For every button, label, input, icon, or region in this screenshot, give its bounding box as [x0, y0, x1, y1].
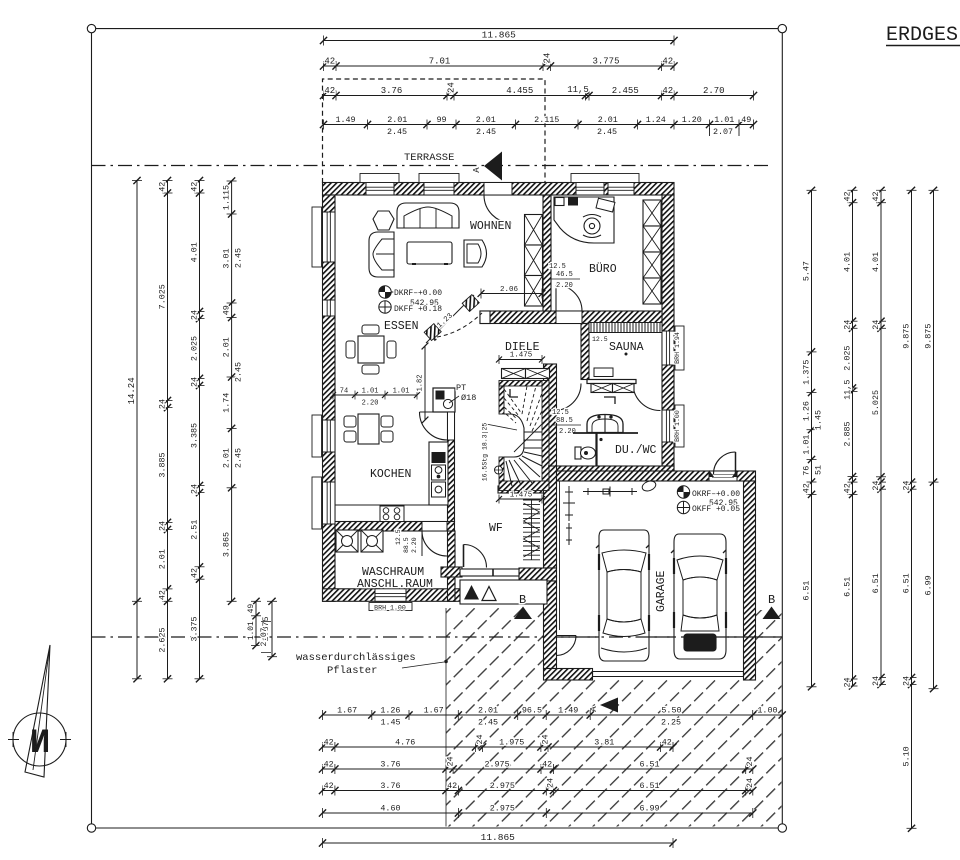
svg-text:14.24: 14.24: [127, 377, 137, 404]
svg-text:PT: PT: [456, 383, 466, 393]
svg-text:11.865: 11.865: [481, 832, 516, 843]
svg-text:4.01: 4.01: [190, 242, 200, 262]
svg-text:3.76: 3.76: [380, 760, 400, 770]
svg-text:6.51: 6.51: [639, 781, 659, 791]
svg-text:3.885: 3.885: [158, 452, 168, 477]
svg-text:2.45: 2.45: [234, 448, 244, 468]
svg-text:24: 24: [190, 377, 200, 387]
svg-text:N: N: [30, 725, 50, 763]
svg-text:2.07: 2.07: [261, 627, 269, 646]
svg-text:12.5: 12.5: [549, 263, 566, 271]
svg-text:42: 42: [542, 760, 552, 770]
svg-text:2.07: 2.07: [713, 127, 733, 137]
svg-text:2.975: 2.975: [490, 804, 515, 814]
svg-text:74: 74: [340, 388, 348, 396]
svg-text:1.45: 1.45: [814, 410, 824, 430]
svg-text:1.24: 1.24: [646, 115, 666, 125]
svg-text:4.76: 4.76: [395, 738, 415, 748]
svg-text:3.76: 3.76: [381, 86, 403, 96]
svg-text:wasserdurchlässiges: wasserdurchlässiges: [296, 652, 416, 664]
svg-text:24: 24: [843, 677, 853, 687]
svg-text:BRH 1.94: BRH 1.94: [674, 332, 681, 364]
svg-text:49: 49: [741, 115, 751, 125]
svg-text:6.51: 6.51: [902, 573, 912, 593]
svg-text:2.01: 2.01: [476, 115, 496, 125]
svg-text:24: 24: [902, 676, 912, 686]
svg-text:KOCHEN: KOCHEN: [370, 468, 411, 481]
svg-text:7.025: 7.025: [158, 284, 168, 309]
svg-text:1.67: 1.67: [424, 706, 444, 716]
svg-text:5.50: 5.50: [661, 706, 681, 716]
svg-text:2.025: 2.025: [190, 336, 200, 361]
svg-text:1.01: 1.01: [802, 435, 812, 455]
svg-text:1.475: 1.475: [510, 352, 533, 360]
svg-text:ANSCHL.RAUM: ANSCHL.RAUM: [357, 578, 433, 591]
svg-text:2.885: 2.885: [843, 421, 853, 446]
svg-text:11,5: 11,5: [843, 380, 853, 400]
svg-text:3.76: 3.76: [380, 781, 400, 791]
svg-text:24: 24: [445, 756, 455, 766]
svg-text:1.01: 1.01: [393, 388, 410, 396]
svg-text:6.99: 6.99: [924, 575, 934, 595]
svg-text:4.60: 4.60: [380, 804, 400, 814]
svg-text:2.51: 2.51: [190, 520, 200, 540]
svg-text:11,5: 11,5: [567, 85, 589, 95]
svg-text:6.51: 6.51: [802, 581, 812, 601]
svg-text:9.875: 9.875: [924, 324, 934, 349]
svg-text:42: 42: [324, 86, 335, 96]
svg-text:1.01: 1.01: [362, 388, 379, 396]
svg-text:24: 24: [902, 481, 912, 491]
svg-text:16.5Stg 18.3|25: 16.5Stg 18.3|25: [482, 423, 489, 482]
svg-text:5.025: 5.025: [871, 390, 881, 415]
svg-text:42: 42: [158, 590, 168, 600]
svg-text:1.115: 1.115: [222, 185, 232, 210]
svg-text:2.45: 2.45: [234, 248, 244, 268]
svg-text:3.81: 3.81: [594, 738, 614, 748]
svg-text:A: A: [472, 167, 482, 173]
svg-text:2.115: 2.115: [534, 115, 559, 125]
svg-text:3.375: 3.375: [190, 616, 200, 641]
svg-text:12.5: 12.5: [395, 529, 402, 545]
svg-text:1.00: 1.00: [757, 706, 777, 716]
svg-text:42: 42: [662, 86, 673, 96]
svg-text:42: 42: [324, 57, 335, 67]
svg-text:42: 42: [158, 182, 168, 192]
svg-text:OKRF–+0.00: OKRF–+0.00: [692, 490, 740, 499]
svg-text:24: 24: [540, 734, 550, 744]
svg-text:46.5: 46.5: [556, 271, 573, 279]
svg-text:2.01: 2.01: [387, 115, 407, 125]
svg-text:3.385: 3.385: [190, 423, 200, 448]
svg-text:BRH 1.00: BRH 1.00: [374, 605, 406, 612]
svg-text:7.01: 7.01: [429, 57, 451, 67]
svg-text:WOHNEN: WOHNEN: [470, 220, 511, 233]
svg-text:OKFF +0.05: OKFF +0.05: [692, 505, 740, 514]
svg-text:24: 24: [871, 320, 881, 330]
svg-text:88.5: 88.5: [556, 417, 573, 425]
svg-text:2.45: 2.45: [476, 127, 496, 137]
svg-text:42: 42: [802, 483, 812, 493]
svg-text:1.01: 1.01: [248, 621, 256, 640]
svg-text:88.5: 88.5: [403, 537, 410, 553]
svg-text:4.455: 4.455: [506, 86, 533, 96]
svg-text:1.45: 1.45: [380, 718, 400, 728]
svg-text:2.06: 2.06: [500, 286, 519, 294]
svg-text:9.875: 9.875: [902, 324, 912, 349]
svg-text:42: 42: [662, 738, 672, 748]
svg-text:2.45: 2.45: [597, 127, 617, 137]
svg-text:42: 42: [324, 760, 334, 770]
svg-text:1.49: 1.49: [558, 706, 578, 716]
svg-text:5.47: 5.47: [802, 261, 812, 281]
svg-text:24: 24: [546, 778, 556, 788]
svg-text:2.45: 2.45: [387, 127, 407, 137]
svg-text:42: 42: [324, 738, 334, 748]
svg-text:2.20: 2.20: [556, 282, 573, 290]
svg-text:51: 51: [814, 465, 824, 475]
svg-text:ESSEN: ESSEN: [384, 320, 419, 333]
svg-text:6.51: 6.51: [871, 573, 881, 593]
svg-text:12.5: 12.5: [552, 409, 569, 417]
svg-text:BÜRO: BÜRO: [589, 263, 617, 276]
svg-text:DKFF +0.18: DKFF +0.18: [394, 305, 442, 314]
svg-text:TERRASSE: TERRASSE: [404, 152, 454, 164]
svg-text:1.26: 1.26: [802, 401, 812, 421]
svg-text:24: 24: [745, 778, 755, 788]
svg-text:4.01: 4.01: [871, 252, 881, 272]
svg-text:1.01: 1.01: [714, 115, 734, 125]
svg-text:3.775: 3.775: [592, 57, 619, 67]
svg-text:2.625: 2.625: [158, 627, 168, 652]
svg-text:24: 24: [446, 82, 456, 93]
svg-text:1.375: 1.375: [802, 360, 812, 385]
svg-text:1.26: 1.26: [380, 706, 400, 716]
svg-text:42: 42: [662, 57, 673, 67]
svg-text:1.67: 1.67: [337, 706, 357, 716]
svg-text:2.455: 2.455: [612, 86, 639, 96]
svg-text:42: 42: [324, 781, 334, 791]
svg-text:24: 24: [190, 310, 200, 320]
svg-text:24: 24: [745, 756, 755, 766]
svg-text:1.975: 1.975: [499, 738, 524, 748]
svg-text:3.865: 3.865: [222, 532, 232, 557]
svg-text:42: 42: [190, 568, 200, 578]
svg-text:ERDGES: ERDGES: [886, 24, 958, 47]
svg-text:6.99: 6.99: [639, 804, 659, 814]
svg-text:5.10: 5.10: [902, 746, 912, 766]
svg-text:SAUNA: SAUNA: [609, 341, 644, 354]
svg-text:24: 24: [543, 53, 553, 64]
svg-text:3.01: 3.01: [222, 248, 232, 268]
svg-text:2.45: 2.45: [478, 718, 498, 728]
svg-text:76: 76: [802, 466, 812, 476]
svg-text:GARAGE: GARAGE: [655, 570, 668, 612]
svg-text:B: B: [519, 593, 526, 607]
svg-text:6.51: 6.51: [843, 577, 853, 597]
svg-text:42: 42: [190, 182, 200, 192]
svg-text:1.49: 1.49: [335, 115, 355, 125]
svg-text:11.865: 11.865: [482, 30, 517, 41]
svg-text:49: 49: [248, 604, 256, 614]
svg-text:49: 49: [222, 305, 232, 315]
svg-text:WF: WF: [489, 522, 503, 535]
svg-text:24: 24: [843, 320, 853, 330]
svg-text:4.01: 4.01: [843, 252, 853, 272]
svg-text:BRH 1.00: BRH 1.00: [674, 410, 681, 442]
svg-text:2.45: 2.45: [234, 362, 244, 382]
svg-text:1.82: 1.82: [417, 375, 425, 392]
svg-text:6.51: 6.51: [639, 760, 659, 770]
svg-text:2.20: 2.20: [559, 428, 576, 436]
svg-text:2.975: 2.975: [484, 760, 509, 770]
svg-text:2.01: 2.01: [598, 115, 618, 125]
svg-text:1.74: 1.74: [222, 393, 232, 413]
svg-text:24: 24: [871, 676, 881, 686]
svg-text:Ø18: Ø18: [461, 393, 476, 403]
svg-text:2.01: 2.01: [222, 337, 232, 357]
svg-text:Pflaster: Pflaster: [327, 665, 377, 677]
svg-text:2.975: 2.975: [490, 781, 515, 791]
svg-text:42: 42: [843, 191, 853, 201]
svg-text:24: 24: [871, 481, 881, 491]
svg-text:2.25: 2.25: [661, 718, 681, 728]
svg-text:96.5: 96.5: [522, 706, 542, 716]
svg-text:42: 42: [871, 191, 881, 201]
svg-text:24: 24: [158, 521, 168, 531]
svg-text:2.01: 2.01: [478, 706, 498, 716]
svg-text:24: 24: [475, 734, 485, 744]
svg-text:24: 24: [158, 399, 168, 409]
svg-text:1.20: 1.20: [682, 115, 702, 125]
svg-text:12.5: 12.5: [592, 336, 608, 343]
svg-text:42: 42: [447, 781, 457, 791]
svg-text:2.20: 2.20: [362, 400, 379, 408]
svg-text:2.70: 2.70: [703, 86, 725, 96]
svg-text:B: B: [768, 593, 775, 607]
svg-text:2.01: 2.01: [222, 448, 232, 468]
svg-text:42: 42: [843, 483, 853, 493]
svg-text:1.475: 1.475: [510, 492, 533, 500]
svg-text:2.20: 2.20: [411, 537, 418, 553]
svg-text:2.025: 2.025: [843, 346, 853, 371]
svg-text:DKRF–+0.00: DKRF–+0.00: [394, 289, 442, 298]
svg-text:2.01: 2.01: [158, 549, 168, 569]
svg-text:99: 99: [436, 115, 446, 125]
svg-text:DU./WC: DU./WC: [615, 444, 657, 457]
svg-text:24: 24: [190, 484, 200, 494]
